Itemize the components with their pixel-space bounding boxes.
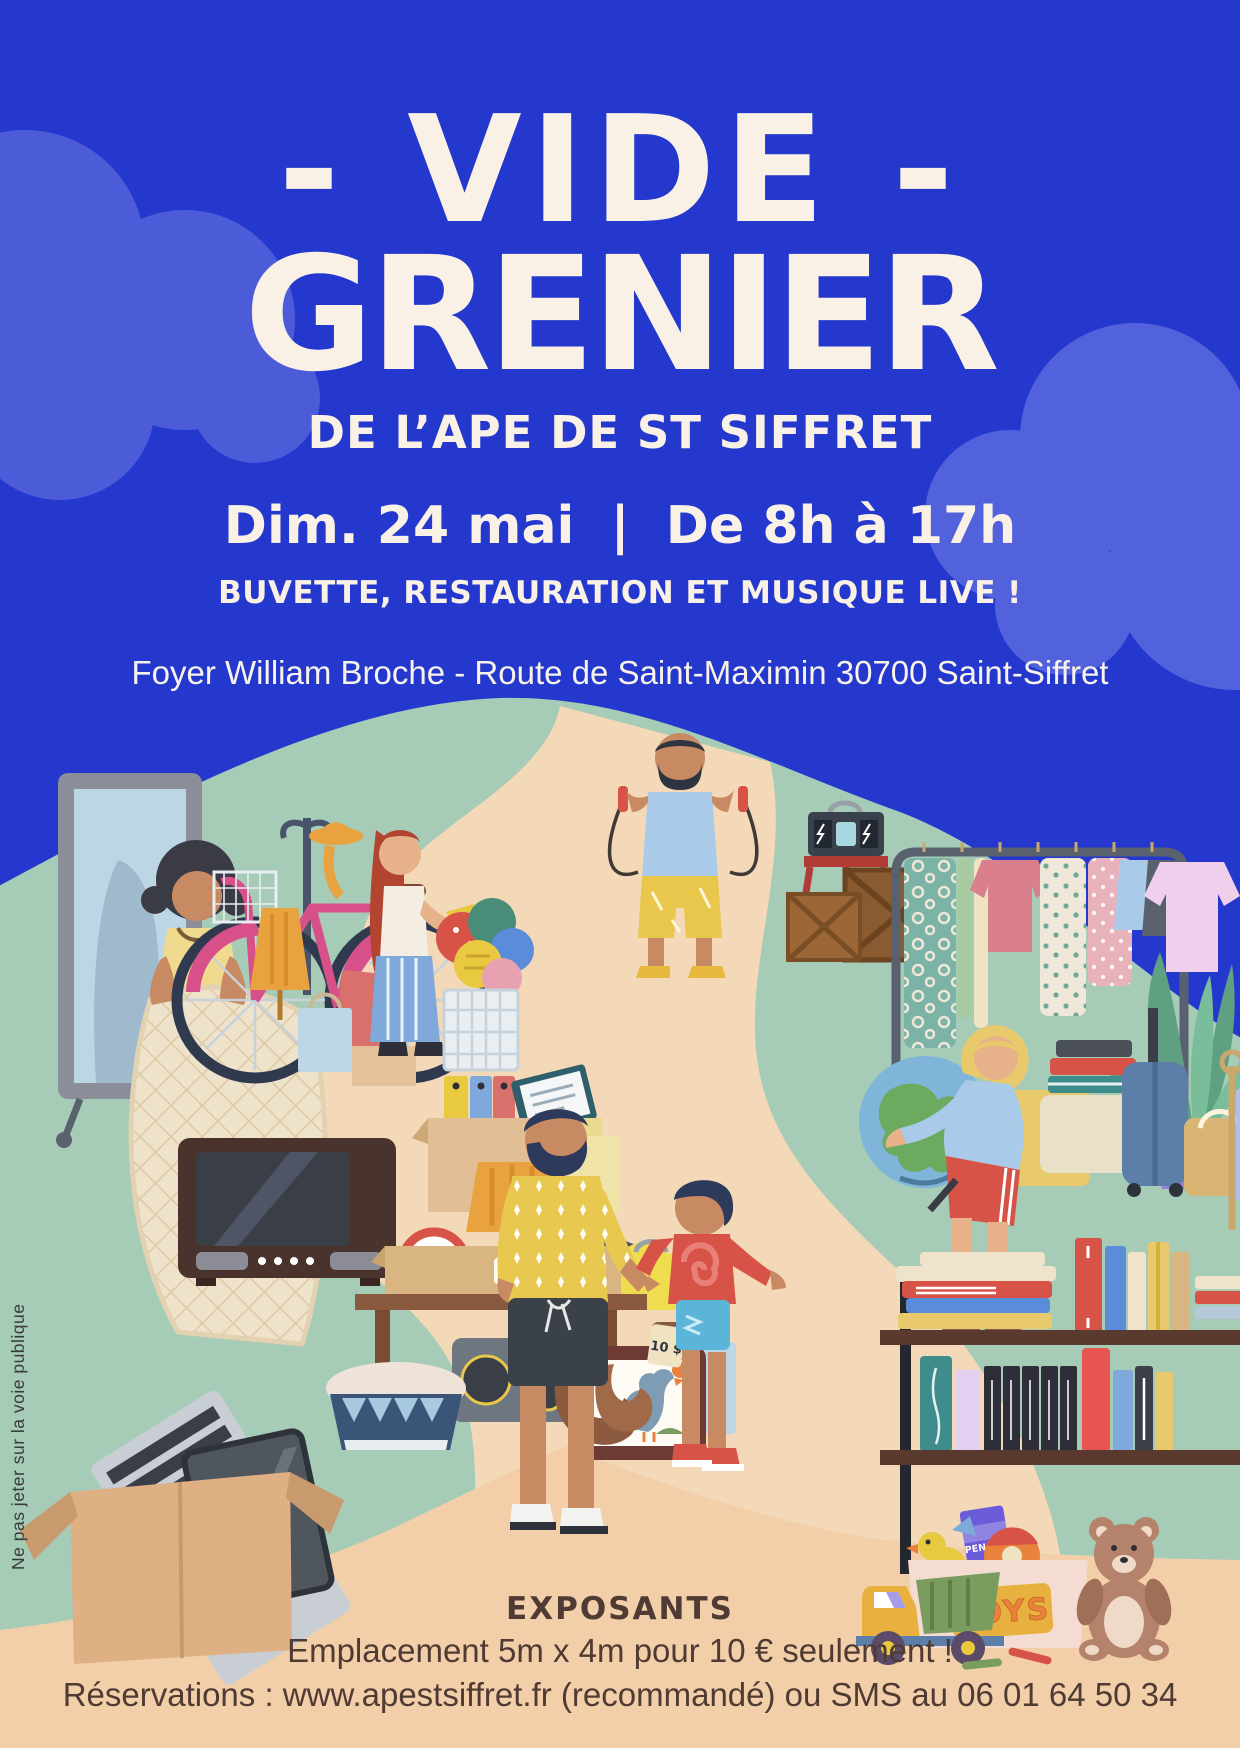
event-tagline: BUVETTE, RESTAURATION ET MUSIQUE LIVE ! — [0, 578, 1240, 609]
side-note-vertical: Ne pas jeter sur la voie publique — [8, 1122, 29, 1570]
vide-grenier-poster: FOR SALE 10 $ — [0, 0, 1240, 1748]
event-address: Foyer William Broche - Route de Saint-Ma… — [0, 656, 1240, 689]
footer-heading: EXPOSANTS — [0, 1594, 1240, 1625]
poster-subtitle: DE L’APE DE ST SIFFRET — [0, 410, 1240, 455]
footer-reservation-line: Réservations : www.apestsiffret.fr (reco… — [0, 1678, 1240, 1711]
poster-title-line1: - VIDE - — [0, 96, 1240, 244]
event-date-time: Dim. 24 mai | De 8h à 17h — [0, 500, 1240, 552]
footer-pricing-line: Emplacement 5m x 4m pour 10 € seulement … — [0, 1634, 1240, 1667]
tv-illustration — [178, 1138, 396, 1286]
poster-title-line2: GRENIER — [0, 236, 1240, 394]
